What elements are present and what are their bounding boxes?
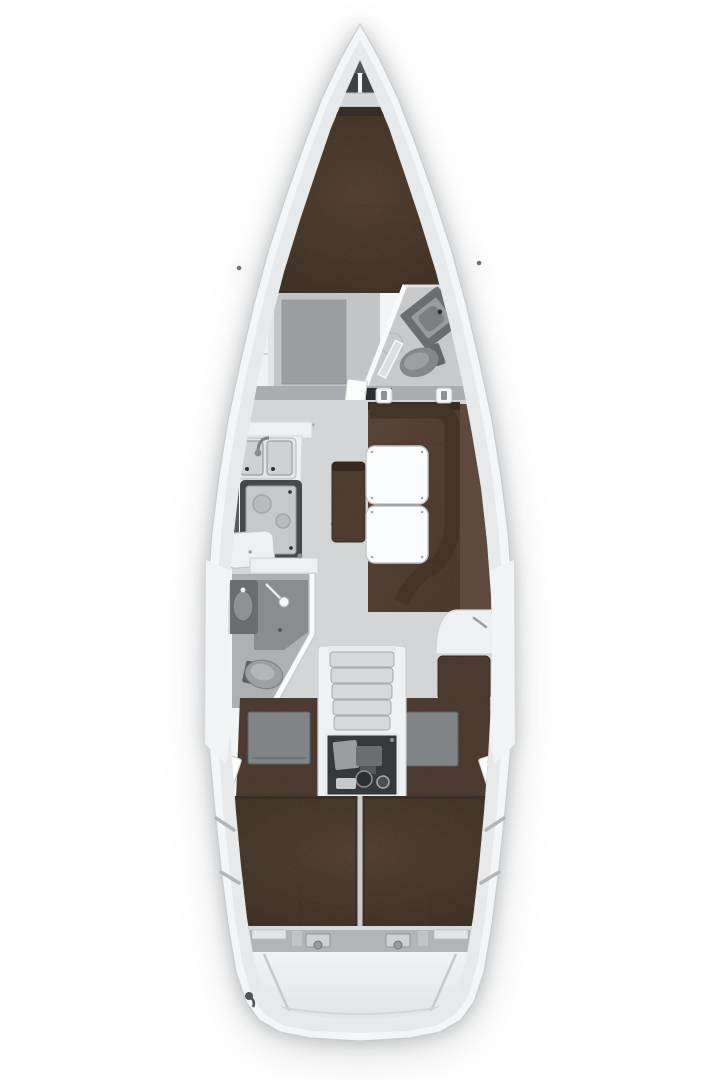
aft-head-counter-post (298, 554, 303, 559)
sill-block (418, 931, 428, 946)
aft-cabin-starboard-hatch (406, 712, 458, 766)
engine-fitting (390, 738, 394, 742)
engine-tray (336, 778, 356, 789)
engine-manifold (356, 746, 382, 766)
sofa-clip (376, 388, 392, 403)
sofa-clip (436, 388, 452, 403)
engine-block (333, 740, 360, 770)
aft-berth-divider (358, 796, 363, 932)
dinette-tables (366, 446, 428, 563)
floorplan-canvas (0, 0, 720, 1080)
nav-seat (438, 656, 490, 700)
aft-head-vanity (226, 580, 258, 634)
step-tread (333, 700, 391, 715)
step-tread (330, 652, 394, 667)
bench-cushion (332, 462, 365, 542)
shower-head (279, 597, 289, 607)
nav-desk (436, 610, 496, 654)
aft-vanity-tap (241, 588, 246, 593)
chainplate-fitting-port (237, 266, 242, 271)
interior (200, 20, 520, 1030)
engine-compartment (326, 734, 398, 796)
aft-double-berth (212, 796, 508, 932)
shower-drain (278, 628, 282, 632)
chainplate-fitting-starboard (477, 261, 482, 266)
sill-hinge (306, 934, 330, 949)
galley-sink-right (267, 441, 292, 475)
table-forward (366, 446, 428, 504)
aft-cabin-port-hatch (248, 712, 310, 764)
engine-pulley (356, 771, 372, 787)
companionway (318, 646, 406, 800)
step-tread (334, 716, 390, 730)
yacht-floorplan (0, 0, 720, 1080)
companionway-steps (330, 652, 394, 730)
stove-burner (253, 495, 271, 513)
aft-vanity-sink (233, 591, 253, 621)
sill-plate (434, 930, 468, 939)
sill-plate (252, 930, 286, 939)
saloon-bench (332, 462, 365, 542)
sink-drain (245, 467, 249, 471)
stove-knob (288, 490, 292, 494)
sink-drain (271, 467, 275, 471)
stove-knob (289, 546, 293, 550)
galley-faucet-base (255, 450, 262, 457)
table-aft (366, 506, 428, 563)
sill-hinge (386, 934, 410, 949)
step-tread (332, 684, 392, 699)
forward-cabin-rug (282, 300, 346, 384)
aft-head-counter (250, 558, 318, 573)
bench-back-edge (332, 462, 365, 471)
step-tread (331, 668, 393, 683)
sill-block (292, 931, 302, 946)
engine-filter (377, 776, 389, 788)
stove-burner (276, 514, 290, 528)
